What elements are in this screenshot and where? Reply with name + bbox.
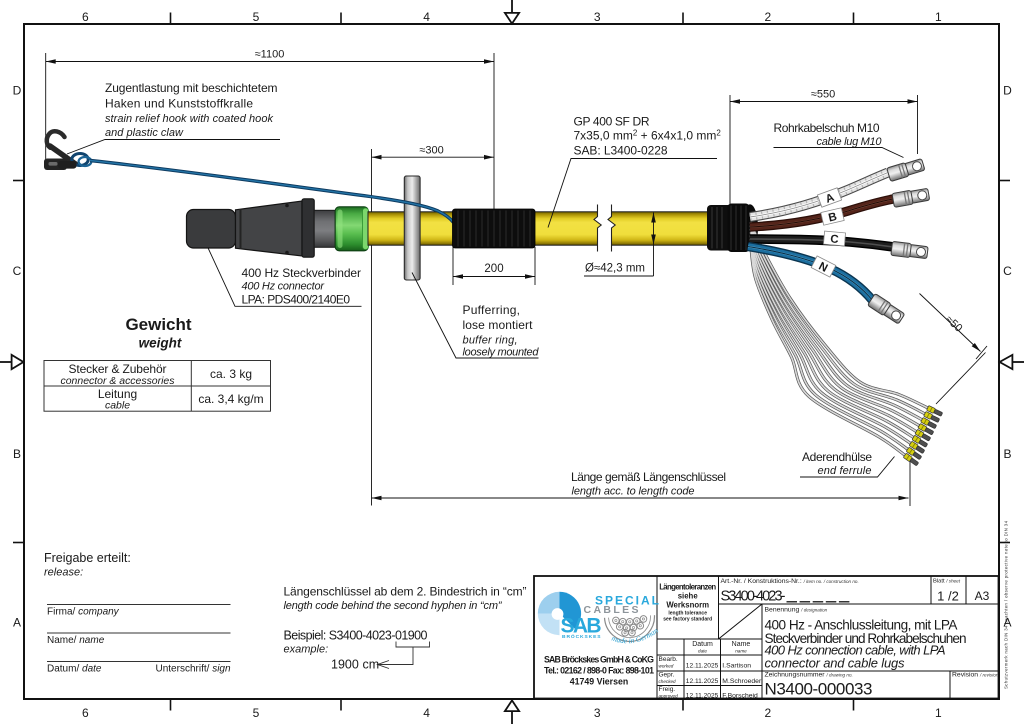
svg-text:Bearb.: Bearb.	[659, 656, 678, 663]
svg-text:4: 4	[423, 10, 430, 24]
svg-text:Ø≈42,3 mm: Ø≈42,3 mm	[585, 263, 645, 275]
svg-text:1 /2: 1 /2	[937, 589, 959, 604]
svg-text:C: C	[1003, 264, 1012, 278]
svg-text:D: D	[1003, 84, 1012, 98]
svg-text:7x35,0 mm2 + 6x4x1,0 mm2: 7x35,0 mm2 + 6x4x1,0 mm2	[574, 129, 722, 143]
svg-text:Firma/ company: Firma/ company	[47, 607, 120, 618]
svg-text:Längentoleranzen: Längentoleranzen	[659, 583, 716, 592]
svg-text:2: 2	[764, 10, 771, 24]
svg-text:Aderendhülse: Aderendhülse	[802, 450, 872, 464]
svg-text:Name: Name	[732, 641, 751, 648]
svg-text:C: C	[830, 233, 839, 246]
svg-text:F.Borscheid: F.Borscheid	[722, 693, 758, 700]
svg-text:approved: approved	[659, 694, 679, 699]
svg-text:Zeichnungsnummer / drawing no.: Zeichnungsnummer / drawing no.	[765, 672, 853, 679]
svg-text:Unterschrift/ sign: Unterschrift/ sign	[156, 664, 231, 675]
svg-text:Revision / revision: Revision / revision	[952, 672, 999, 679]
svg-text:example:: example:	[284, 644, 329, 656]
svg-text:connector & accessories: connector & accessories	[61, 375, 176, 387]
svg-text:A3: A3	[975, 589, 990, 603]
svg-text:1900: 1900	[331, 658, 359, 672]
svg-text:≈1100: ≈1100	[255, 49, 285, 61]
svg-text:Freig.: Freig.	[659, 686, 676, 693]
svg-text:A: A	[13, 616, 21, 630]
svg-text:M.Schroeder: M.Schroeder	[722, 678, 762, 685]
svg-text:buffer ring,: buffer ring,	[463, 335, 518, 347]
svg-text:LPA: PDS400/2140E0: LPA: PDS400/2140E0	[242, 292, 351, 306]
svg-text:Freigabe erteilt:: Freigabe erteilt:	[44, 551, 131, 565]
svg-text:Gepr.: Gepr.	[659, 672, 675, 679]
svg-text:Länge gemäß Längenschlüssel: Länge gemäß Längenschlüssel	[571, 470, 726, 484]
svg-text:6: 6	[82, 706, 89, 720]
svg-text:B: B	[1003, 447, 1011, 461]
svg-text:400 Hz Steckverbinder: 400 Hz Steckverbinder	[242, 266, 362, 280]
svg-text:5: 5	[253, 10, 260, 24]
svg-text:BRÖCKSKES: BRÖCKSKES	[562, 633, 601, 640]
svg-text:12.11.2025: 12.11.2025	[686, 663, 719, 670]
svg-text:200: 200	[484, 263, 503, 275]
svg-text:connector and cable lugs: connector and cable lugs	[765, 656, 906, 671]
svg-text:41749 Viersen: 41749 Viersen	[570, 677, 629, 687]
svg-text:3: 3	[594, 10, 601, 24]
svg-text:Tel.: 02162 / 898-0 Fax: 898-: Tel.: 02162 / 898-0 Fax: 898-101	[544, 666, 654, 676]
svg-text:weight: weight	[139, 336, 182, 351]
svg-text:checked: checked	[659, 679, 677, 684]
svg-text:Beispiel: S3400-4023-01900: Beispiel: S3400-4023-01900	[284, 629, 428, 643]
svg-text:GP 400 SF DR: GP 400 SF DR	[574, 115, 650, 129]
svg-text:ca. 3 kg: ca. 3 kg	[210, 367, 252, 381]
svg-text:3: 3	[594, 706, 601, 720]
svg-text:Haken und Kunststoffkralle: Haken und Kunststoffkralle	[105, 97, 253, 111]
svg-text:date: date	[698, 649, 707, 654]
svg-text:Name/ name: Name/ name	[47, 635, 105, 646]
svg-text:Schutzvermerk nach DIN 34 beac: Schutzvermerk nach DIN 34 beachten / obs…	[1004, 520, 1009, 689]
svg-text:I.Sartison: I.Sartison	[722, 663, 751, 670]
svg-text:loosely mounted: loosely mounted	[463, 347, 540, 359]
svg-text:400 Hz connector: 400 Hz connector	[242, 281, 326, 293]
svg-text:C: C	[13, 264, 22, 278]
svg-text:see factory standard: see factory standard	[663, 617, 712, 623]
svg-text:name: name	[735, 649, 747, 654]
svg-text:length code behind the second: length code behind the second hyphen in …	[284, 600, 503, 612]
svg-text:N3400-000033: N3400-000033	[765, 680, 873, 699]
svg-text:end ferrule: end ferrule	[818, 465, 872, 477]
svg-text:Pufferring,: Pufferring,	[463, 303, 521, 317]
svg-text:Rohrkabelschuh M10: Rohrkabelschuh M10	[774, 121, 880, 135]
svg-text:Benennung / designation: Benennung / designation	[765, 607, 828, 614]
svg-text:5: 5	[253, 706, 260, 720]
svg-text:1: 1	[935, 10, 942, 24]
svg-text:SAB Bröckskes GmbH & CoKG: SAB Bröckskes GmbH & CoKG	[544, 655, 654, 665]
svg-text:4: 4	[423, 706, 430, 720]
svg-text:12.11.2025: 12.11.2025	[686, 693, 719, 700]
svg-text:cable lug M10: cable lug M10	[817, 136, 883, 148]
svg-text:12.11.2025: 12.11.2025	[686, 678, 719, 685]
svg-text:≈550: ≈550	[811, 89, 835, 101]
svg-text:cable: cable	[105, 400, 130, 412]
svg-text:and plastic claw: and plastic claw	[105, 127, 184, 139]
svg-text:S3400-4023-: S3400-4023-	[721, 589, 786, 605]
svg-text:strain relief hook with coated: strain relief hook with coated hook	[105, 113, 274, 125]
svg-text:Art.-Nr. / Konstruktions-Nr.:: Art.-Nr. / Konstruktions-Nr.: / item no.…	[721, 578, 859, 585]
svg-text:Gewicht: Gewicht	[125, 315, 191, 334]
svg-text:worked: worked	[659, 664, 674, 669]
svg-text:Längenschlüssel ab dem 2. Bind: Längenschlüssel ab dem 2. Bindestrich in…	[284, 585, 527, 599]
svg-text:1: 1	[935, 706, 942, 720]
svg-text:siehe: siehe	[678, 592, 699, 601]
svg-text:≈300: ≈300	[419, 145, 443, 157]
svg-text:Werksnorm: Werksnorm	[666, 601, 709, 610]
svg-text:cm: cm	[363, 658, 380, 672]
svg-text:SAB: L3400-0228: SAB: L3400-0228	[574, 144, 668, 158]
svg-text:B: B	[13, 447, 21, 461]
svg-text:2: 2	[764, 706, 771, 720]
svg-text:length acc. to length code: length acc. to length code	[572, 486, 695, 498]
svg-text:D: D	[13, 84, 22, 98]
svg-text:6: 6	[82, 10, 89, 24]
svg-text:Zugentlastung mit beschichtete: Zugentlastung mit beschichtetem	[105, 81, 278, 95]
svg-text:lose montiert: lose montiert	[463, 318, 534, 332]
svg-text:ca. 3,4 kg/m: ca. 3,4 kg/m	[198, 392, 263, 406]
svg-text:release:: release:	[44, 567, 83, 579]
svg-text:Datum: Datum	[692, 641, 713, 648]
svg-text:Datum/ date: Datum/ date	[47, 664, 102, 675]
